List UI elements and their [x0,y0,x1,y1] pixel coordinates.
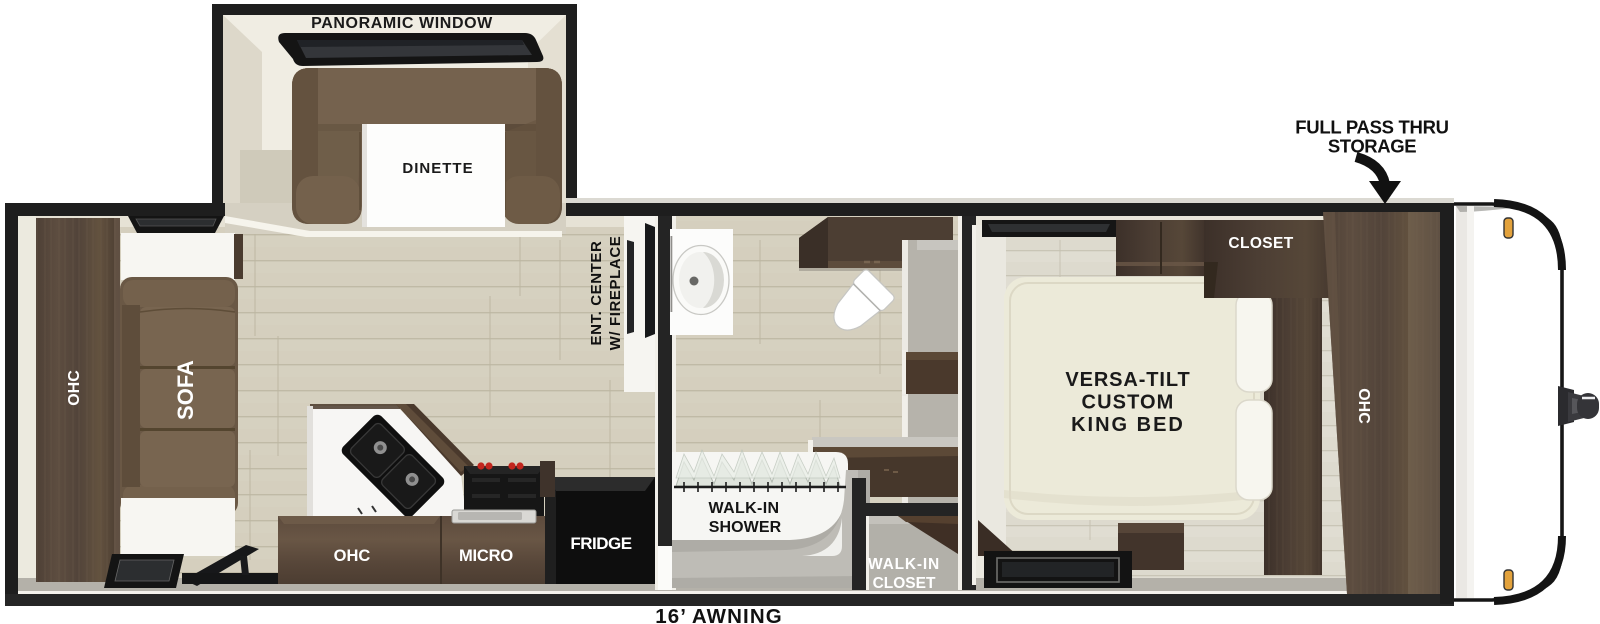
svg-text:WALK-IN: WALK-IN [709,500,780,517]
svg-text:MICRO: MICRO [459,547,513,565]
svg-text:CLOSET: CLOSET [873,575,936,592]
svg-text:WALK-IN: WALK-IN [868,556,940,573]
svg-text:SHOWER: SHOWER [709,519,782,536]
svg-text:CUSTOM: CUSTOM [1082,392,1175,414]
svg-text:DINETTE: DINETTE [402,160,473,177]
svg-text:PANORAMIC WINDOW: PANORAMIC WINDOW [311,15,493,32]
svg-text:SOFA: SOFA [173,360,198,420]
svg-text:ENT. CENTER: ENT. CENTER [588,241,605,346]
svg-text:STORAGE: STORAGE [1328,136,1416,157]
svg-text:FULL PASS THRU: FULL PASS THRU [1295,117,1448,138]
svg-text:CLOSET: CLOSET [1228,235,1293,252]
svg-text:OHC: OHC [334,547,371,565]
svg-text:FRIDGE: FRIDGE [570,534,631,553]
svg-text:W/ FIREPLACE: W/ FIREPLACE [607,236,624,351]
svg-text:OHC: OHC [1355,388,1372,424]
svg-text:16’ AWNING: 16’ AWNING [655,605,783,624]
svg-text:VERSA-TILT: VERSA-TILT [1065,369,1190,391]
svg-text:OHC: OHC [66,370,83,406]
svg-text:KING BED: KING BED [1071,414,1185,436]
